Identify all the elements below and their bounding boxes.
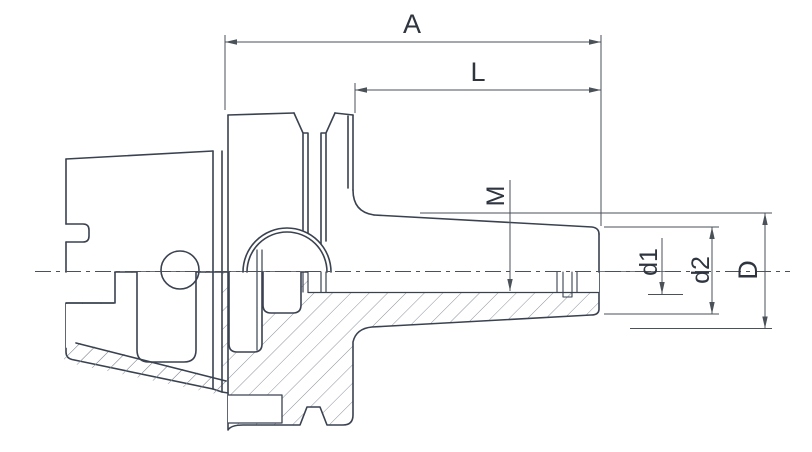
flange-right-edge-upper — [348, 115, 353, 190]
gripper-groove-left — [294, 113, 308, 233]
label-d1: d1 — [635, 248, 663, 276]
dim-d2-arrow-top — [709, 227, 714, 239]
dim-A-arrow-right — [589, 39, 601, 44]
dim-A-arrow-left — [225, 39, 237, 44]
dimension-labels: A L M d1 d2 D — [403, 9, 763, 284]
label-A: A — [403, 9, 421, 39]
cone-top-edge — [374, 215, 599, 234]
tool-bore — [308, 271, 599, 293]
ball-track-arc-outer — [243, 228, 331, 272]
flange-top-right — [335, 113, 353, 115]
gripper-groove-right — [321, 113, 335, 244]
dim-d1-arrow — [659, 282, 664, 294]
technical-drawing-page: A L M d1 d2 D — [0, 0, 812, 452]
dim-d2-arrow-bottom — [709, 302, 714, 314]
tool-holder-drawing: A L M d1 d2 D — [0, 0, 812, 452]
flange-top-left — [228, 113, 294, 115]
dim-L-arrow-left — [355, 87, 367, 92]
label-M: M — [482, 186, 510, 207]
dim-D-arrow-bottom — [762, 317, 767, 329]
flange-to-cone-fillet — [353, 190, 374, 215]
dim-D-arrow-top — [762, 213, 767, 225]
shank-face-notch — [66, 224, 89, 242]
drive-slot-edge — [66, 272, 115, 303]
label-D: D — [733, 260, 763, 280]
label-L: L — [470, 57, 485, 87]
pocket-counterbore — [137, 272, 196, 362]
pocket-flange-right — [263, 272, 301, 313]
dimension-L — [355, 83, 601, 113]
dim-L-arrow-right — [589, 87, 601, 92]
flange-bottom-slot — [228, 395, 282, 423]
label-d2: d2 — [687, 256, 715, 284]
shank-taper-top — [66, 151, 213, 159]
dimension-A — [225, 35, 601, 226]
